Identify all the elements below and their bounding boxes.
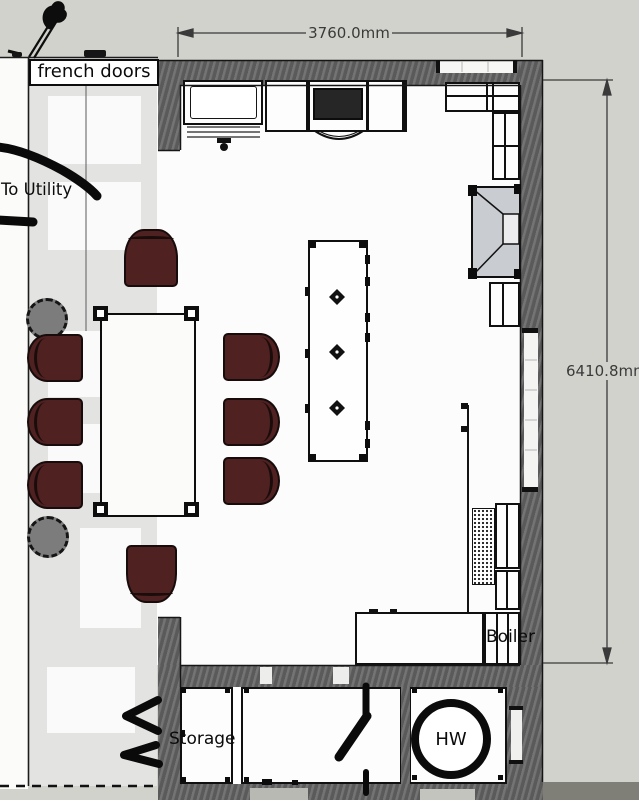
top-dimension-text: 3760.0mm	[306, 24, 392, 42]
sink-tap	[217, 138, 231, 151]
right-dimension-text: 6410.8mm	[566, 362, 639, 380]
oven-door-arc	[315, 131, 363, 139]
boiler-label: Boiler	[486, 627, 535, 647]
plan-detail-linework	[0, 0, 639, 800]
to-utility-label: To Utility	[1, 180, 72, 199]
storage-label: Storage	[169, 729, 236, 749]
french-doors-label: french doors	[29, 59, 159, 86]
counter-boundary	[369, 403, 468, 614]
island-knobs	[329, 289, 345, 416]
corner-appliance-detail	[468, 184, 521, 279]
floor-plan: HW	[0, 0, 639, 800]
storage-door	[339, 686, 367, 793]
sink-drainer	[187, 127, 260, 137]
